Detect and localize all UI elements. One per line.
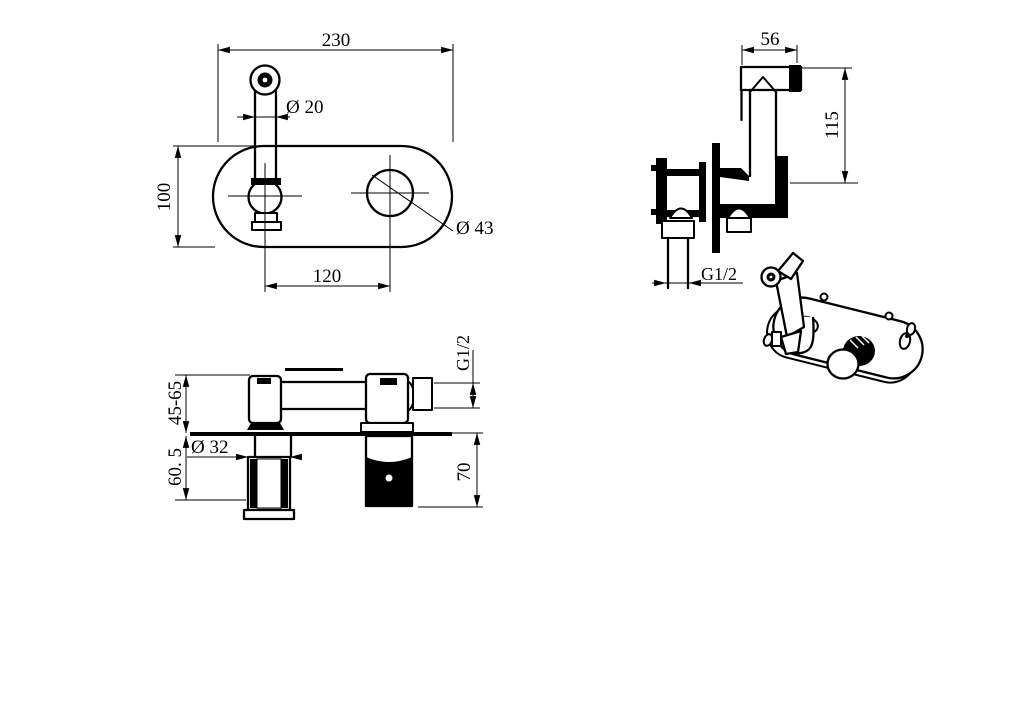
sprayer-head-cap-section: [789, 65, 801, 92]
dim-height-label: 115: [822, 111, 843, 139]
drawing-canvas: 230 100 Ø 43 Ø 20 120: [0, 0, 1024, 723]
screw-bump: [886, 313, 893, 320]
holder-base: [247, 423, 284, 430]
inlet-flange-section: [656, 158, 667, 224]
knob-front-face: [828, 350, 859, 379]
side-view: 56 115 G1/2: [651, 29, 858, 288]
valve-notch: [380, 378, 397, 385]
valve-seat-dome: [670, 209, 692, 219]
holder-collar: [255, 213, 277, 222]
section-mark: [285, 368, 343, 371]
dim-spout-diameter-label: Ø 20: [286, 97, 323, 118]
holder-foot: [252, 222, 281, 230]
dim-embed-depth-label: 60. 5: [165, 448, 186, 486]
dim-valve-depth-label: 70: [454, 463, 475, 482]
wall-plate-section: [712, 143, 720, 253]
dim-inlet-thread-label: G1/2: [701, 264, 737, 284]
inlet-port: [413, 378, 432, 410]
inlet-nut: [662, 221, 694, 238]
sprayer-head-dot-perspective: [770, 276, 773, 279]
holder-notch: [257, 378, 271, 384]
technical-drawing-sheet: 230 100 Ø 43 Ø 20 120: [0, 0, 1024, 723]
rear-fitting-dot: [905, 334, 909, 338]
sprayer-head-dot: [263, 78, 268, 83]
perspective-view: [762, 253, 929, 388]
holder-seat-wall: [250, 459, 257, 508]
holder-seat-wall: [281, 459, 288, 508]
body-joint-section: [699, 162, 706, 222]
front-view: 230 100 Ø 43 Ø 20 120: [154, 30, 493, 292]
flange-nub: [651, 165, 657, 171]
channel-wall-section: [667, 169, 700, 176]
dim-wall-depth-range-label: 45-65: [165, 381, 186, 425]
sprayer-handle-top: [778, 253, 803, 279]
dim-inlet-thread-plan-label: G1/2: [453, 335, 473, 371]
flange-nub: [651, 209, 657, 215]
holder-seat-flange: [244, 510, 294, 519]
dim-hole-spacing-label: 120: [313, 266, 342, 287]
dim-plate-height-label: 100: [154, 183, 175, 212]
valve-roughin-hole: [386, 475, 393, 482]
dim-hole-diameter-label: Ø 43: [456, 218, 493, 239]
plan-view: 45-65 60. 5 Ø 32: [165, 335, 483, 519]
cradle-bracket: [772, 332, 781, 346]
body-top-wall-section: [720, 168, 749, 181]
holder-collar-band: [251, 178, 281, 185]
valve-flange: [361, 423, 413, 432]
dim-head-width-label: 56: [761, 29, 780, 50]
valve-seat-block: [727, 218, 751, 232]
dim-holder-diameter-label: Ø 32: [191, 437, 228, 458]
screw-bump: [821, 294, 828, 301]
dim-plate-width-label: 230: [322, 30, 351, 51]
